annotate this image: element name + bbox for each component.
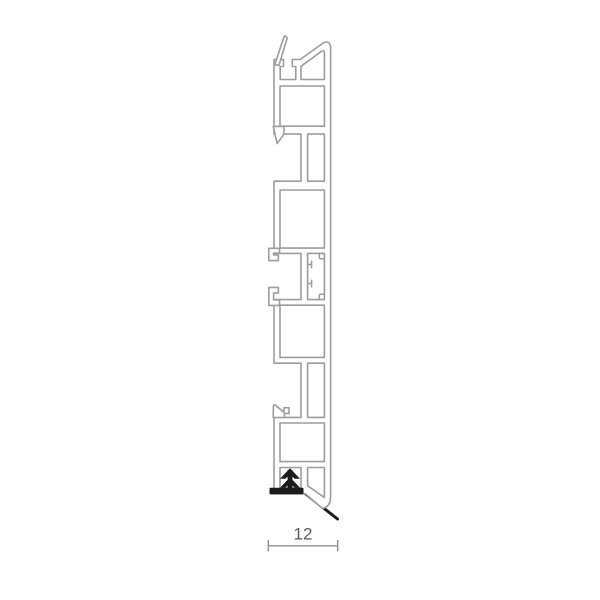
- clip-hooks: [269, 126, 289, 417]
- clip-hook-upper: [269, 248, 280, 260]
- top-gasket-fin: [275, 36, 287, 66]
- dimension-label: 12: [294, 525, 313, 544]
- dimension: 12: [268, 525, 337, 552]
- push-in-arrow-icon: [280, 468, 300, 489]
- gasket-base-bar: [270, 488, 304, 495]
- profile-body: [274, 42, 331, 508]
- profile-cross-section-drawing: 12: [0, 0, 600, 600]
- image-canvas: 12: [0, 0, 600, 600]
- clip-hook-lower: [269, 287, 280, 305]
- clip-hook-bottom-fin: [273, 405, 289, 418]
- clip-hook-beak: [273, 126, 284, 143]
- screw-boss-marks: [308, 253, 325, 299]
